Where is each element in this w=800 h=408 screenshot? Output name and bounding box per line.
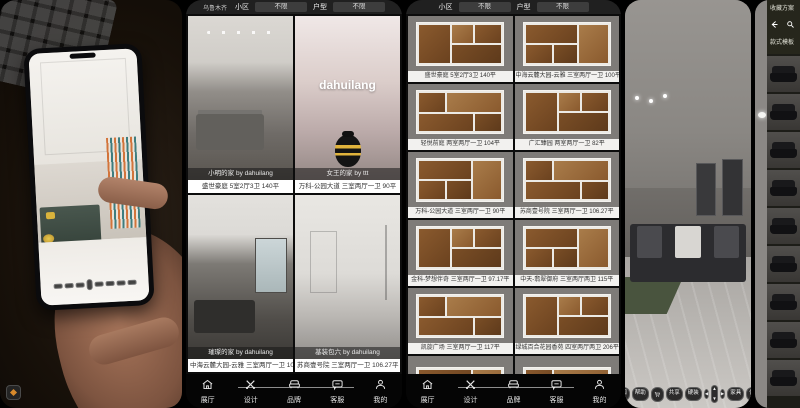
watermark-text: dahuilang <box>295 78 400 92</box>
floorplan-room <box>559 113 608 131</box>
room-card-grid: 小明的家 by dahuilang盛世豪庭 5室2厅3卫 140平dahuila… <box>186 14 402 374</box>
wall-art <box>696 163 716 216</box>
arrow-left-icon[interactable]: ◀ <box>704 389 709 399</box>
room-light-glow <box>758 112 766 118</box>
floorplan-info: 盛世豪庭 5室2厅3卫 140平 <box>408 71 513 82</box>
floorplan-grid: 盛世豪庭 5室2厅3卫 140平中海云麓大园-云雅 三室两厅一卫 100平轻悦前… <box>406 14 621 374</box>
panel-furniture-sidebar: 收藏方案 款式模板 <box>755 0 800 408</box>
floorplan-room <box>475 229 501 247</box>
furniture-thumbnail[interactable] <box>767 170 800 206</box>
phone-screen-ar-room <box>28 48 149 305</box>
photo-decor <box>255 238 287 294</box>
room-caption: 小明的家 by dahuilang <box>188 168 293 180</box>
viewer-toolbar: 返回帮助共享硬装◀▲▼▶家具保存 <box>626 385 750 403</box>
floorplan-card[interactable]: 轻悦前庭 两室两厅一卫 104平 <box>408 84 513 150</box>
floorplan-room <box>452 25 473 43</box>
room-info: 盛世豪庭 5室2厅3卫 140平 <box>188 180 293 193</box>
furniture-thumbnail[interactable] <box>767 56 800 92</box>
floorplan-image <box>408 16 513 71</box>
floorplan-room <box>447 297 501 317</box>
bottom-nav: 展厅设计品牌客服我的 <box>186 374 402 408</box>
toolbar-button[interactable]: 帮助 <box>632 387 649 401</box>
nav-brand-icon <box>288 378 301 396</box>
furniture-thumbnail[interactable] <box>767 208 800 244</box>
floorplan-room <box>419 181 445 199</box>
nav-label: 客服 <box>550 397 564 404</box>
room-photo: 璀璨的家 by dahuilang <box>188 195 293 359</box>
floorplan-room <box>419 25 450 63</box>
floorplan-room <box>579 25 608 63</box>
floorplan-image <box>515 84 620 139</box>
nav-home-icon <box>201 378 214 396</box>
dpad-control[interactable]: ▲▼ <box>711 385 717 403</box>
floorplan-card[interactable]: 绿城百合花园香苑 四室两厅两卫 206平 <box>515 288 620 354</box>
floorplan-drawing <box>416 22 504 66</box>
floorplan-room <box>582 182 608 198</box>
furniture-thumbnail[interactable] <box>767 360 800 396</box>
catalog-sidebar: 收藏方案 款式模板 <box>767 0 800 408</box>
floorplan-card[interactable] <box>408 356 513 374</box>
floorplan-info: 轻悦前庭 两室两厅一卫 104平 <box>408 139 513 150</box>
floorplan-room <box>526 229 577 247</box>
floorplan-room <box>475 25 501 43</box>
floorplan-room <box>582 93 608 111</box>
floorplan-info: 广汇臻园 两室两厅一卫 82平 <box>515 139 620 150</box>
furniture-thumbnail[interactable] <box>767 94 800 130</box>
nav-item-mine[interactable]: 我的 <box>359 374 402 408</box>
floorplan-drawing <box>416 367 504 374</box>
photo-decor <box>385 225 387 300</box>
furniture-thumbnail-list <box>767 54 800 408</box>
nav-label: 展厅 <box>201 397 215 404</box>
floorplan-room <box>526 182 580 198</box>
community-filter-button[interactable]: 不限 <box>255 2 307 12</box>
nav-service-icon <box>331 378 344 396</box>
floorplan-room <box>447 181 470 199</box>
panel-room-list: 乌鲁木齐 小区 不限 户型 不限 小明的家 by dahuilang盛世豪庭 5… <box>186 0 402 408</box>
nav-label: 我的 <box>593 397 607 404</box>
room-info: 中海云麓大园-云雅 三室两厅一卫 100平 <box>188 359 293 372</box>
floorplan-card[interactable]: 金科-梦想伴奇 三室两厅一卫 97.17平 <box>408 220 513 286</box>
panel-floorplan-list: 小区 不限 户型 不限 盛世豪庭 5室2厅3卫 140平中海云麓大园-云雅 三室… <box>406 0 621 408</box>
floorplan-image <box>515 220 620 275</box>
nav-mine-icon <box>593 378 606 396</box>
bottom-nav: 展厅设计品牌客服我的 <box>406 374 621 408</box>
floorplan-card[interactable]: 苏商壹号院 三室两厅一卫 106.27平 <box>515 152 620 218</box>
toolbar-button[interactable]: 返回 <box>625 387 630 401</box>
furniture-thumbnail[interactable] <box>767 132 800 168</box>
photo-decor <box>207 31 272 34</box>
floorplan-drawing <box>523 226 611 270</box>
floorplan-drawing <box>523 22 611 66</box>
nav-home-icon <box>421 378 434 396</box>
floorplan-room <box>452 249 501 267</box>
room-card[interactable]: 基装包六 by dahuilang苏商壹号院 三室两厅一卫 106.27平 <box>295 195 400 372</box>
floorplan-room <box>419 114 473 130</box>
layout-filter-button[interactable]: 不限 <box>537 2 589 12</box>
floorplan-room <box>475 114 501 130</box>
arrow-right-icon[interactable]: ▶ <box>720 389 725 399</box>
nav-item-home[interactable]: 展厅 <box>186 374 229 408</box>
floorplan-room <box>447 93 501 113</box>
floorplan-drawing <box>416 158 504 202</box>
floorplan-room <box>579 229 608 267</box>
floorplan-card[interactable]: 中海云麓大园-云雅 三室两厅一卫 100平 <box>515 16 620 82</box>
nav-item-service[interactable]: 客服 <box>316 374 359 408</box>
floorplan-card[interactable]: 广汇臻园 两室两厅一卫 82平 <box>515 84 620 150</box>
nav-label: 展厅 <box>421 397 435 404</box>
sofa <box>630 224 746 281</box>
screenshot-strip: 乌鲁木齐 小区 不限 户型 不限 小明的家 by dahuilang盛世豪庭 5… <box>0 0 800 408</box>
panel-3d-viewer: 返回帮助共享硬装◀▲▼▶家具保存 <box>625 0 751 408</box>
nav-label: 品牌 <box>287 397 301 404</box>
floorplan-info: 中海云麓大园-云雅 三室两厅一卫 100平 <box>515 71 620 82</box>
ar-pillow <box>45 212 54 219</box>
filter-bar: 乌鲁木齐 小区 不限 户型 不限 <box>186 0 402 14</box>
nav-label: 客服 <box>330 397 344 404</box>
room-caption: 基装包六 by dahuilang <box>295 347 400 359</box>
community-filter-label: 小区 <box>235 2 249 12</box>
nav-mine-icon <box>374 378 387 396</box>
layout-filter-button[interactable]: 不限 <box>333 2 385 12</box>
floorplan-room <box>554 249 577 267</box>
nav-item-brand[interactable]: 品牌 <box>272 374 315 408</box>
ceiling-lights <box>635 94 698 104</box>
panel-ar-photo <box>0 0 182 408</box>
toolbar-button[interactable]: 共享 <box>666 387 683 401</box>
search-icon[interactable] <box>786 16 795 34</box>
floorplan-card[interactable] <box>515 356 620 374</box>
floorplan-room <box>452 229 473 247</box>
filter-bar: 小区 不限 户型 不限 <box>406 0 621 14</box>
floorplan-room <box>419 93 445 113</box>
nav-item-service[interactable]: 客服 <box>535 374 578 408</box>
app-badge-icon <box>6 385 21 400</box>
nav-design-icon <box>464 378 477 396</box>
floorplan-info: 万科-公园大道 三室两厅一卫 90平 <box>408 207 513 218</box>
floorplan-image <box>515 152 620 207</box>
room-photo: 基装包六 by dahuilang <box>295 195 400 359</box>
floorplan-drawing <box>523 90 611 134</box>
nav-label: 品牌 <box>507 397 521 404</box>
layout-filter-label: 户型 <box>517 2 531 12</box>
city-label[interactable]: 乌鲁木齐 <box>203 3 227 12</box>
floorplan-drawing <box>523 158 611 202</box>
floorplan-room <box>526 93 557 131</box>
floorplan-room <box>554 161 608 181</box>
floorplan-room <box>554 45 577 63</box>
room-photo: 小明的家 by dahuilang <box>188 16 293 180</box>
photo-decor <box>194 300 255 333</box>
room-caption: 女王的家 by ttt <box>295 168 400 180</box>
floorplan-room <box>419 297 445 317</box>
floorplan-card[interactable]: 万科-公园大道 三室两厅一卫 90平 <box>408 152 513 218</box>
ar-floor <box>38 237 149 306</box>
room-card[interactable]: 璀璨的家 by dahuilang中海云麓大园-云雅 三室两厅一卫 100平 <box>188 195 293 372</box>
floorplan-image <box>408 356 513 374</box>
furniture-thumbnail[interactable] <box>767 246 800 282</box>
floorplan-image <box>515 16 620 71</box>
nav-label: 设计 <box>464 397 478 404</box>
room-card[interactable]: 小明的家 by dahuilang盛世豪庭 5室2厅3卫 140平 <box>188 16 293 193</box>
phone-device <box>23 43 155 311</box>
floorplan-room <box>475 318 501 334</box>
floorplan-room <box>526 161 552 181</box>
wall-art <box>722 159 743 216</box>
community-filter-button[interactable]: 不限 <box>459 2 511 12</box>
floorplan-drawing <box>523 294 611 338</box>
nav-label: 设计 <box>244 397 258 404</box>
nav-design-icon <box>244 378 257 396</box>
floorplan-room <box>526 297 557 335</box>
room-card[interactable]: dahuilang女王的家 by ttt万科-公园大道 三室两厅一卫 90平 <box>295 16 400 193</box>
floorplan-image <box>408 152 513 207</box>
nav-item-mine[interactable]: 我的 <box>578 374 621 408</box>
room-photo: dahuilang女王的家 by ttt <box>295 16 400 180</box>
floorplan-image <box>515 356 620 374</box>
floorplan-info: 中天-翡翠御府 三室两厅两卫 115平 <box>515 275 620 286</box>
floorplan-info: 金科-梦想伴奇 三室两厅一卫 97.17平 <box>408 275 513 286</box>
floorplan-card[interactable]: 盛世豪庭 5室2厅3卫 140平 <box>408 16 513 82</box>
nav-service-icon <box>550 378 563 396</box>
floorplan-room <box>473 161 502 199</box>
floorplan-card[interactable]: 凯旋广场 三室两厅一卫 117平 <box>408 288 513 354</box>
toolbar-button[interactable]: 硬装 <box>685 387 702 401</box>
catalog-title: 收藏方案 <box>770 3 798 12</box>
nav-item-brand[interactable]: 品牌 <box>492 374 535 408</box>
floorplan-room <box>559 297 580 315</box>
room-info: 万科-公园大道 三室两厅一卫 90平 <box>295 180 400 193</box>
floorplan-room <box>559 93 580 111</box>
floorplan-drawing <box>416 90 504 134</box>
photo-decor <box>196 114 263 150</box>
cart-icon[interactable] <box>651 387 664 402</box>
room-info: 苏商壹号院 三室两厅一卫 106.27平 <box>295 359 400 372</box>
floorplan-room <box>526 249 552 267</box>
floorplan-room <box>419 229 450 267</box>
layout-filter-label: 户型 <box>313 2 327 12</box>
catalog-tab[interactable]: 款式模板 <box>770 37 798 46</box>
nav-item-design[interactable]: 设计 <box>449 374 492 408</box>
floorplan-info: 绿城百合花园香苑 四室两厅两卫 206平 <box>515 343 620 354</box>
floorplan-room <box>419 318 473 334</box>
back-icon[interactable] <box>770 16 779 34</box>
floorplan-image <box>408 84 513 139</box>
floorplan-image <box>408 288 513 343</box>
furniture-thumbnail[interactable] <box>767 322 800 358</box>
floorplan-room <box>526 25 577 43</box>
mascot-vase-character <box>335 135 361 167</box>
catalog-header: 收藏方案 款式模板 <box>767 0 800 54</box>
floorplan-drawing <box>523 367 611 374</box>
room-caption: 璀璨的家 by dahuilang <box>188 347 293 359</box>
nav-label: 我的 <box>373 397 387 404</box>
floorplan-card[interactable]: 中天-翡翠御府 三室两厅两卫 115平 <box>515 220 620 286</box>
floorplan-info: 苏商壹号院 三室两厅一卫 106.27平 <box>515 207 620 218</box>
floorplan-image <box>408 220 513 275</box>
furniture-thumbnail[interactable] <box>767 284 800 320</box>
floorplan-room <box>452 45 501 63</box>
toolbar-button[interactable]: 保存 <box>746 387 751 401</box>
nav-item-home[interactable]: 展厅 <box>406 374 449 408</box>
floorplan-room <box>526 45 552 63</box>
nav-brand-icon <box>507 378 520 396</box>
floorplan-drawing <box>416 226 504 270</box>
toolbar-button[interactable]: 家具 <box>727 387 744 401</box>
floorplan-room <box>582 297 608 315</box>
community-filter-label: 小区 <box>439 2 453 12</box>
floorplan-drawing <box>416 294 504 338</box>
floorplan-image <box>515 288 620 343</box>
floorplan-room <box>419 161 470 179</box>
floorplan-room <box>559 317 608 335</box>
photo-decor <box>310 231 337 293</box>
floorplan-info: 凯旋广场 三室两厅一卫 117平 <box>408 343 513 354</box>
nav-item-design[interactable]: 设计 <box>229 374 272 408</box>
